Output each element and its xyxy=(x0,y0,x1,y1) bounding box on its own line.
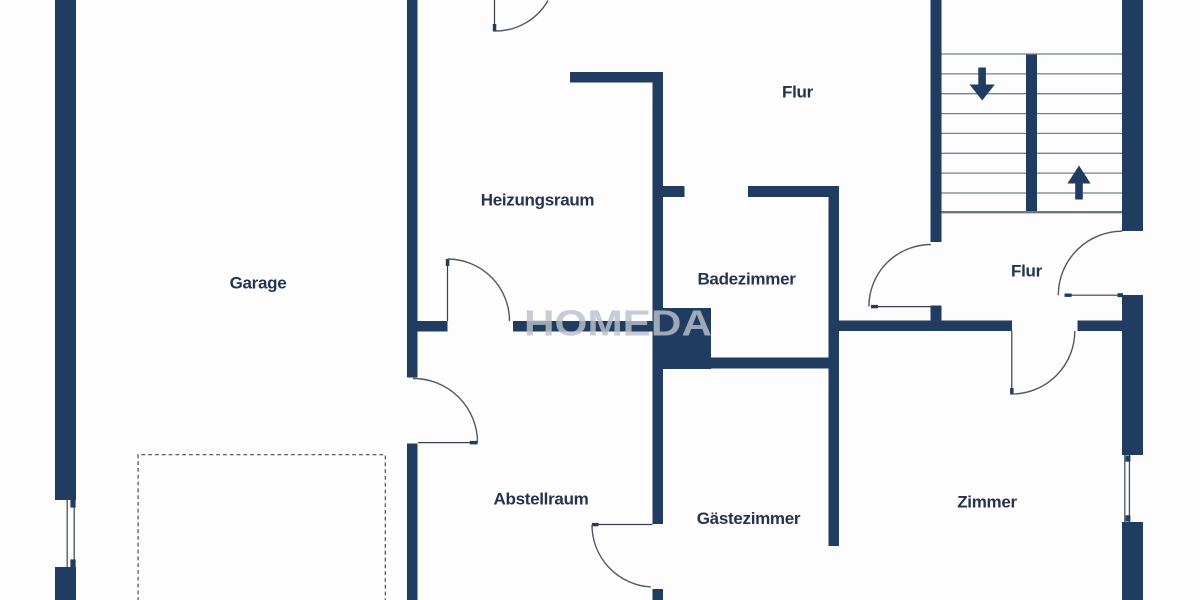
svg-text:Zimmer: Zimmer xyxy=(957,493,1017,512)
svg-text:Badezimmer: Badezimmer xyxy=(697,270,796,289)
svg-text:HOMEDA: HOMEDA xyxy=(524,303,712,344)
svg-text:Flur: Flur xyxy=(1011,262,1043,281)
svg-text:Heizungsraum: Heizungsraum xyxy=(481,191,595,210)
svg-text:Flur: Flur xyxy=(782,83,814,102)
svg-text:Abstellraum: Abstellraum xyxy=(494,490,589,509)
svg-text:Garage: Garage xyxy=(230,274,287,293)
svg-text:Gästezimmer: Gästezimmer xyxy=(697,509,801,528)
